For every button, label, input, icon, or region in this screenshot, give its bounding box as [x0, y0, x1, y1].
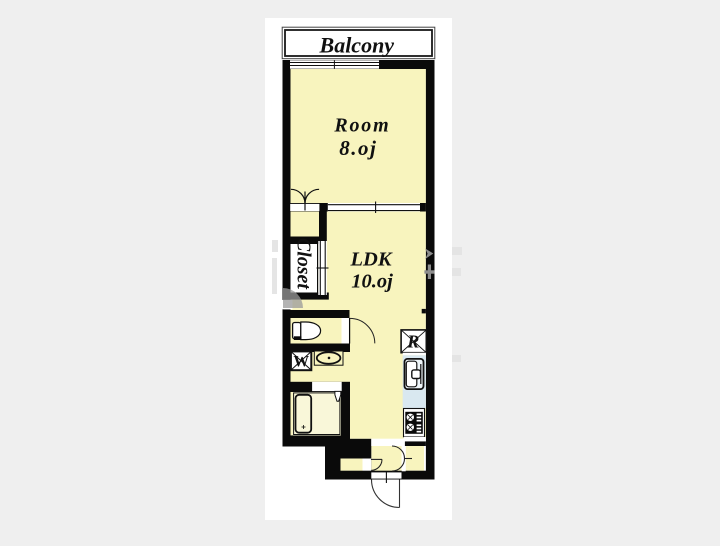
- svg-text:Closet: Closet: [292, 238, 314, 291]
- svg-text:W: W: [293, 354, 309, 371]
- svg-text:Balcony: Balcony: [319, 32, 395, 57]
- svg-text:10.oj: 10.oj: [351, 271, 393, 293]
- svg-text:LDK: LDK: [350, 249, 393, 271]
- svg-text:R: R: [406, 332, 419, 352]
- svg-text:8.oj: 8.oj: [339, 136, 377, 160]
- svg-text:Room: Room: [333, 115, 390, 137]
